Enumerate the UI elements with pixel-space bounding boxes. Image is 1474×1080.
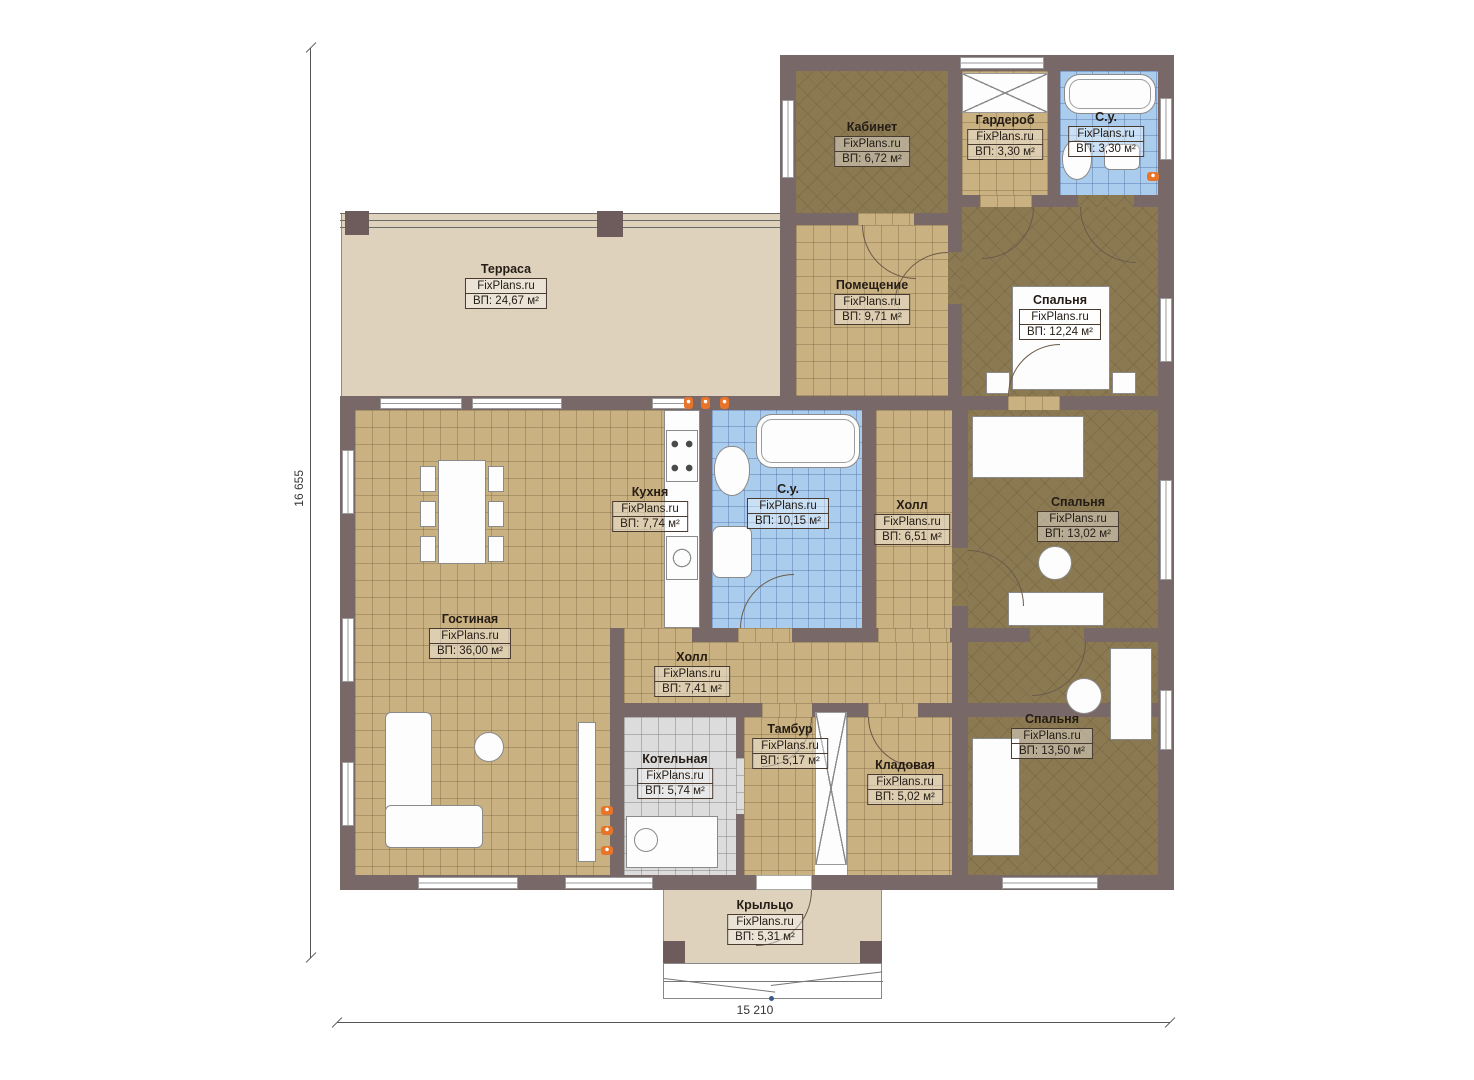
terrace-column xyxy=(597,211,623,237)
brand-label: FixPlans.ru xyxy=(637,768,713,784)
brand-label: FixPlans.ru xyxy=(1019,309,1101,325)
radiator-icon xyxy=(684,397,693,409)
wall-office-wardrobe xyxy=(948,55,962,207)
brand-label: FixPlans.ru xyxy=(747,498,829,514)
window xyxy=(1160,690,1172,750)
porch-steps xyxy=(663,963,882,999)
door-gap xyxy=(980,195,1032,207)
room-label-boiler-room: Котельная FixPlans.ru ВП: 5,74 м² xyxy=(637,752,713,799)
room-label-kitchen: Кухня FixPlans.ru ВП: 7,74 м² xyxy=(612,485,688,532)
door-gap xyxy=(624,628,692,642)
area-label: ВП: 12,24 м² xyxy=(1019,324,1101,340)
window xyxy=(342,618,354,682)
dimension-tick xyxy=(306,952,317,963)
brand-label: FixPlans.ru xyxy=(654,666,730,682)
terrace-railing-line xyxy=(340,227,780,228)
front-door-gap xyxy=(756,875,812,890)
area-label: ВП: 9,71 м² xyxy=(834,309,910,325)
wall-wardrobe-bath xyxy=(1048,55,1060,195)
room-label-utility-room: Помещение FixPlans.ru ВП: 9,71 м² xyxy=(834,278,910,325)
chair-icon xyxy=(1066,678,1102,714)
brand-label: FixPlans.ru xyxy=(465,278,547,294)
area-label: ВП: 5,31 м² xyxy=(727,929,803,945)
terrace-window xyxy=(380,398,462,409)
kitchen-sink-icon xyxy=(666,536,698,580)
window xyxy=(1160,480,1172,580)
wall-utility-bedroom xyxy=(948,207,962,410)
area-label: ВП: 13,02 м² xyxy=(1037,526,1119,542)
area-label: ВП: 6,72 м² xyxy=(834,151,910,167)
terrace-window xyxy=(472,398,562,409)
dimension-tick xyxy=(306,42,317,53)
window xyxy=(1160,98,1172,160)
room-label-bedroom-1: Спальня FixPlans.ru ВП: 12,24 м² xyxy=(1019,293,1101,340)
room-label-terrace: Терраса FixPlans.ru ВП: 24,67 м² xyxy=(465,262,547,309)
terrace-window xyxy=(652,398,686,409)
brand-label: FixPlans.ru xyxy=(727,914,803,930)
door-gap xyxy=(1008,396,1060,410)
brand-label: FixPlans.ru xyxy=(1068,126,1144,142)
bathtub-icon xyxy=(1064,74,1156,114)
area-label: ВП: 5,74 м² xyxy=(637,783,713,799)
radiator-icon xyxy=(601,846,613,855)
window xyxy=(342,762,354,826)
chair-icon xyxy=(488,536,504,562)
wall-outer-right xyxy=(1158,55,1174,890)
chair-icon xyxy=(1038,546,1072,580)
bathtub-icon xyxy=(756,414,860,468)
radiator-icon xyxy=(1147,172,1159,181)
dimension-height-label: 16 655 xyxy=(292,470,306,507)
wall-kitchen-bath xyxy=(700,410,712,628)
room-label-storage: Кладовая FixPlans.ru ВП: 5,02 м² xyxy=(867,758,943,805)
door-gap xyxy=(868,703,918,717)
chair-icon xyxy=(420,501,436,527)
porch-column xyxy=(663,941,685,963)
area-label: ВП: 24,67 м² xyxy=(465,293,547,309)
window xyxy=(1002,877,1098,889)
radiator-icon xyxy=(701,397,710,409)
brand-label: FixPlans.ru xyxy=(834,294,910,310)
window xyxy=(960,57,1044,69)
room-label-wardrobe: Гардероб FixPlans.ru ВП: 3,30 м² xyxy=(967,113,1043,160)
area-label: ВП: 36,00 м² xyxy=(429,643,511,659)
dimension-width-label: 15 210 xyxy=(680,1003,830,1017)
coffee-table xyxy=(474,732,504,762)
room-label-bathroom-big: С.у. FixPlans.ru ВП: 10,15 м² xyxy=(747,482,829,529)
wall-storage-bedroom3 xyxy=(952,642,968,875)
door-gap xyxy=(1030,628,1084,642)
window xyxy=(1160,298,1172,362)
area-label: ВП: 3,30 м² xyxy=(1068,141,1144,157)
door-gap xyxy=(858,213,914,225)
brand-label: FixPlans.ru xyxy=(834,136,910,152)
tv-console xyxy=(578,722,596,862)
brand-label: FixPlans.ru xyxy=(1037,511,1119,527)
stove-icon xyxy=(666,430,698,482)
room-label-office: Кабинет FixPlans.ru ВП: 6,72 м² xyxy=(834,120,910,167)
toilet-icon xyxy=(714,446,750,496)
room-label-vestibule: Тамбур FixPlans.ru ВП: 5,17 м² xyxy=(752,722,828,769)
chair-icon xyxy=(488,501,504,527)
door-gap xyxy=(1078,195,1134,207)
area-label: ВП: 7,41 м² xyxy=(654,681,730,697)
chair-icon xyxy=(420,536,436,562)
dimension-line-vertical xyxy=(310,48,311,958)
door-gap xyxy=(878,628,950,642)
floor-plan-canvas: Кабинет FixPlans.ru ВП: 6,72 м² Гардероб… xyxy=(0,0,1474,1080)
area-label: ВП: 5,02 м² xyxy=(867,789,943,805)
door-gap xyxy=(948,252,962,304)
chair-icon xyxy=(488,466,504,492)
bed xyxy=(972,416,1084,478)
radiator-icon xyxy=(720,397,729,409)
area-label: ВП: 10,15 м² xyxy=(747,513,829,529)
terrace-column xyxy=(345,211,369,235)
porch-column xyxy=(860,941,882,963)
room-label-bedroom-3: Спальня FixPlans.ru ВП: 13,50 м² xyxy=(1011,712,1093,759)
nightstand xyxy=(1112,372,1136,394)
area-label: ВП: 5,17 м² xyxy=(752,753,828,769)
area-label: ВП: 3,30 м² xyxy=(967,144,1043,160)
room-label-hall-2: Холл FixPlans.ru ВП: 7,41 м² xyxy=(654,650,730,697)
brand-label: FixPlans.ru xyxy=(967,129,1043,145)
sofa-chaise xyxy=(385,805,483,848)
room-label-porch: Крыльцо FixPlans.ru ВП: 5,31 м² xyxy=(727,898,803,945)
desk xyxy=(1110,648,1152,740)
room-label-bathroom-small: С.у. FixPlans.ru ВП: 3,30 м² xyxy=(1068,110,1144,157)
door-gap xyxy=(762,703,812,717)
sink-icon xyxy=(712,526,752,578)
room-label-bedroom-2: Спальня FixPlans.ru ВП: 13,02 м² xyxy=(1037,495,1119,542)
step-marker xyxy=(769,996,774,1001)
terrace-railing-line xyxy=(340,213,780,214)
wall-hall-bedroom2 xyxy=(952,410,968,642)
door-gap xyxy=(952,548,968,606)
window xyxy=(418,877,518,889)
floor-terrace xyxy=(341,214,780,396)
wardrobe-icon xyxy=(962,73,1048,113)
nightstand xyxy=(986,372,1010,394)
terrace-railing-line xyxy=(340,220,780,221)
area-label: ВП: 13,50 м² xyxy=(1011,743,1093,759)
window xyxy=(565,877,653,889)
brand-label: FixPlans.ru xyxy=(1011,728,1093,744)
door-gap xyxy=(736,758,744,814)
room-label-hall-1: Холл FixPlans.ru ВП: 6,51 м² xyxy=(874,498,950,545)
window xyxy=(342,450,354,514)
window xyxy=(782,100,794,178)
brand-label: FixPlans.ru xyxy=(429,628,511,644)
dining-table xyxy=(438,460,486,564)
area-label: ВП: 7,74 м² xyxy=(612,516,688,532)
radiator-icon xyxy=(601,826,613,835)
brand-label: FixPlans.ru xyxy=(867,774,943,790)
radiator-icon xyxy=(601,806,613,815)
brand-label: FixPlans.ru xyxy=(612,501,688,517)
door-gap xyxy=(738,628,792,642)
brand-label: FixPlans.ru xyxy=(874,514,950,530)
brand-label: FixPlans.ru xyxy=(752,738,828,754)
area-label: ВП: 6,51 м² xyxy=(874,529,950,545)
chair-icon xyxy=(420,466,436,492)
boiler-dial xyxy=(634,828,658,852)
room-label-living-room: Гостиная FixPlans.ru ВП: 36,00 м² xyxy=(429,612,511,659)
dimension-line-horizontal xyxy=(337,1022,1170,1023)
